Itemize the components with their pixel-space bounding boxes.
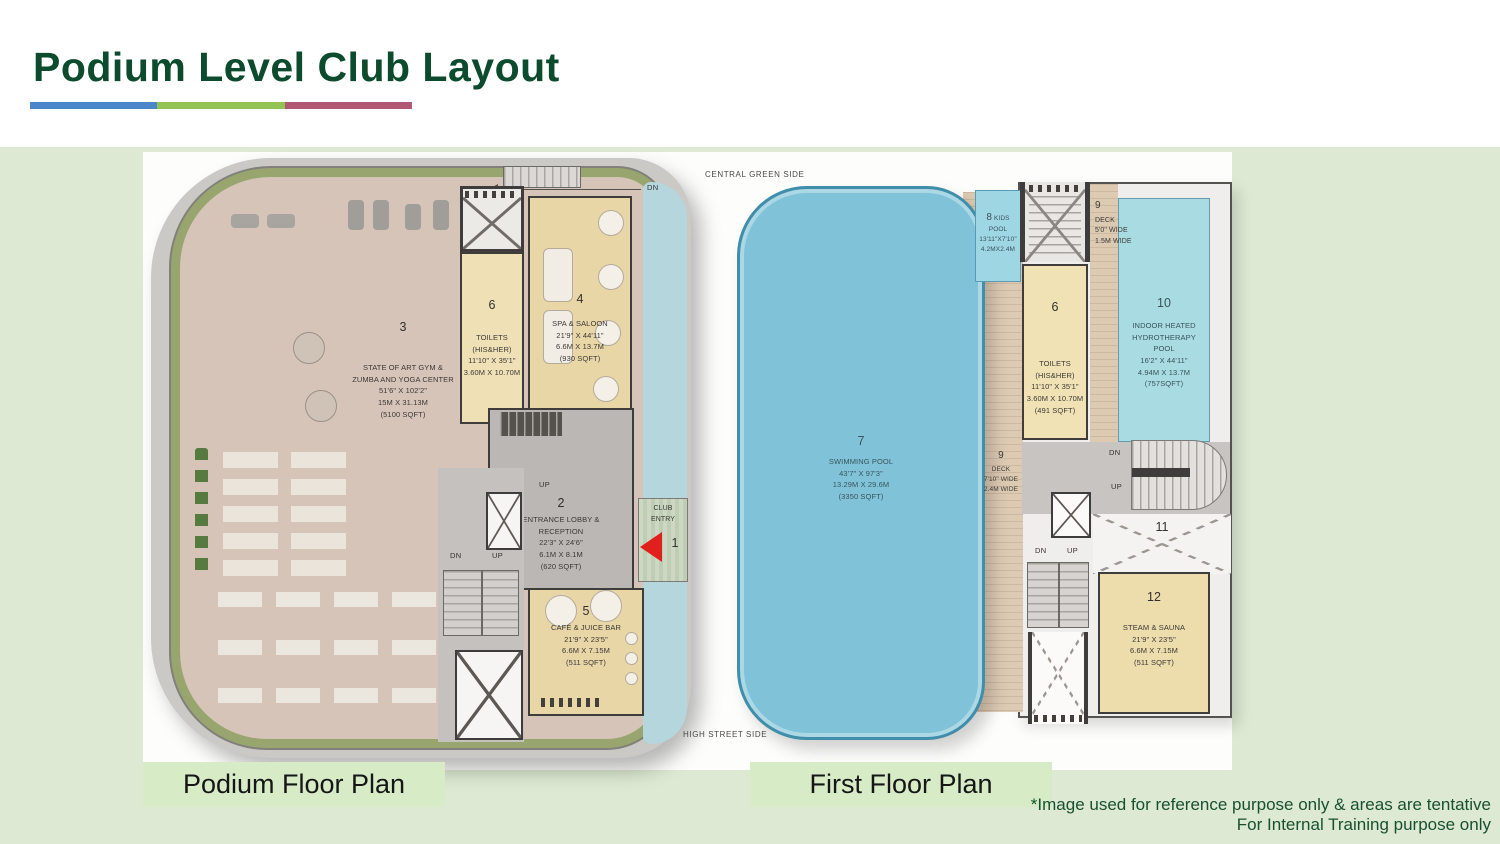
high-street-side-label: HIGH STREET SIDE: [683, 730, 767, 739]
spiral-up-marker: UP: [1111, 482, 1122, 491]
first-stair-unit-top: [1020, 182, 1090, 262]
page-title: Podium Level Club Layout: [33, 44, 560, 91]
gym-mats-zone: [223, 452, 355, 578]
pool-number: 7: [737, 434, 985, 448]
first-plan-caption: First Floor Plan: [750, 762, 1052, 807]
spiral-stair: [1131, 440, 1227, 510]
spa-label: SPA & SALOON 21'9" X 44'11" 6.6M X 13.7M…: [515, 318, 645, 365]
club-entry-number: 1: [665, 536, 685, 550]
gym-table-icon: [305, 390, 337, 422]
gym-machine-icon: [348, 200, 364, 230]
first-stairs: [1027, 562, 1089, 628]
club-entry-arrow-icon: [640, 532, 662, 562]
pool-label: SWIMMING POOL 43'7" X 97'3" 13.29M X 29.…: [737, 456, 985, 503]
sauna-label: STEAM & SAUNA 21'9" X 23'5" 6.6M X 7.15M…: [1093, 622, 1215, 669]
kids-pool-number: 8: [986, 212, 992, 223]
stair-landing-bar: [1132, 468, 1190, 477]
stair-rail: [1058, 563, 1060, 627]
gym-machine-icon: [373, 200, 389, 230]
gym-machine-icon: [267, 214, 295, 228]
podium-stairs: [443, 570, 519, 636]
lift-cross-icon: [488, 494, 520, 548]
accent-green-segment: [157, 102, 284, 109]
lift-cross-icon: [1053, 494, 1089, 536]
deck-side-number: 9: [975, 448, 1027, 463]
void-dashed-cross-icon: [1032, 632, 1084, 724]
cafe-number: 5: [528, 604, 644, 618]
first-stairs-dn-marker: DN: [1035, 546, 1046, 555]
first-shaft: [1028, 632, 1088, 724]
accent-blue-segment: [30, 102, 157, 109]
central-green-side-label: CENTRAL GREEN SIDE: [705, 170, 804, 179]
salon-chair-icon: [593, 376, 619, 402]
spiral-dn-marker: DN: [1109, 448, 1120, 457]
salon-chair-icon: [598, 210, 624, 236]
stair-teeth: [1034, 715, 1082, 722]
gym-machine-icon: [231, 214, 259, 228]
footer-accent-bar: [1096, 786, 1478, 791]
lift-cross-icon: [457, 652, 521, 738]
title-accent-bar: [30, 102, 412, 109]
cafe-chair-icon: [625, 672, 638, 685]
gym-machine-icon: [433, 200, 449, 230]
accent-maroon-segment: [285, 102, 412, 109]
spa-block-stair-lift: [460, 186, 524, 252]
club-entry-label: CLUB ENTRY: [636, 504, 690, 526]
lift-cross-icon: [463, 189, 521, 249]
gym-machine-icon: [405, 204, 421, 230]
stair-cross-icon: [1025, 182, 1085, 262]
sauna-number: 12: [1098, 590, 1210, 604]
lobby-up-marker: UP: [539, 480, 550, 489]
footnote-line1: *Image used for reference purpose only &…: [1031, 795, 1491, 815]
podium-stairs-up-marker: UP: [492, 551, 503, 560]
gym-table-icon: [293, 332, 325, 364]
floor-plans-canvas: DN 3 STATE OF ART GYM & ZUMBA AND YOGA C…: [143, 152, 1232, 770]
void-number: 11: [1093, 520, 1231, 534]
stair-rail: [481, 571, 483, 635]
podium-stairs-dn-marker: DN: [450, 551, 461, 560]
podium-lift-shaft: [486, 492, 522, 550]
gym-loungers-zone: [218, 592, 458, 724]
podium-plan-caption: Podium Floor Plan: [143, 762, 445, 807]
first-toilets-number: 6: [1022, 300, 1088, 314]
first-stairs-up-marker: UP: [1067, 546, 1078, 555]
first-toilets-label: TOILETS (HIS&HER) 11'10" X 35'1" 3.60M X…: [1010, 358, 1100, 416]
podium-toilets-number: 6: [460, 298, 524, 312]
podium-top-stair-strip: [503, 166, 581, 188]
podium-dn-marker: DN: [647, 183, 658, 192]
slide: Podium Level Club Layout DN 3 STATE OF A…: [0, 0, 1500, 844]
deck-side-label: 9 DECK 7'10" WIDE 2.4M WIDE: [975, 448, 1027, 494]
cafe-label: CAFÉ & JUICE BAR 21'9" X 23'5" 6.6M X 7.…: [521, 622, 651, 669]
podium-plan: DN 3 STATE OF ART GYM & ZUMBA AND YOGA C…: [143, 152, 703, 770]
footnote-line2: For Internal Training purpose only: [1237, 815, 1491, 835]
salon-chair-icon: [598, 264, 624, 290]
podium-lift-shaft-2: [455, 650, 523, 740]
hydro-number: 10: [1118, 296, 1210, 310]
first-lift-shaft: [1051, 492, 1091, 538]
cafe-bench-icon: [541, 698, 601, 707]
first-floor-plan: 7 SWIMMING POOL 43'7" X 97'3" 13.29M X 2…: [703, 152, 1232, 770]
spa-number: 4: [528, 292, 632, 306]
gym-plants-strip: [195, 448, 208, 578]
lobby-stair-band: [500, 412, 562, 436]
deck-top-label: 9 DECK 5'0" WIDE 1.5M WIDE: [1095, 198, 1155, 248]
hydro-label: INDOOR HEATED HYDROTHERAPY POOL 16'2" X …: [1108, 320, 1220, 390]
deck-top-number: 9: [1095, 198, 1155, 214]
